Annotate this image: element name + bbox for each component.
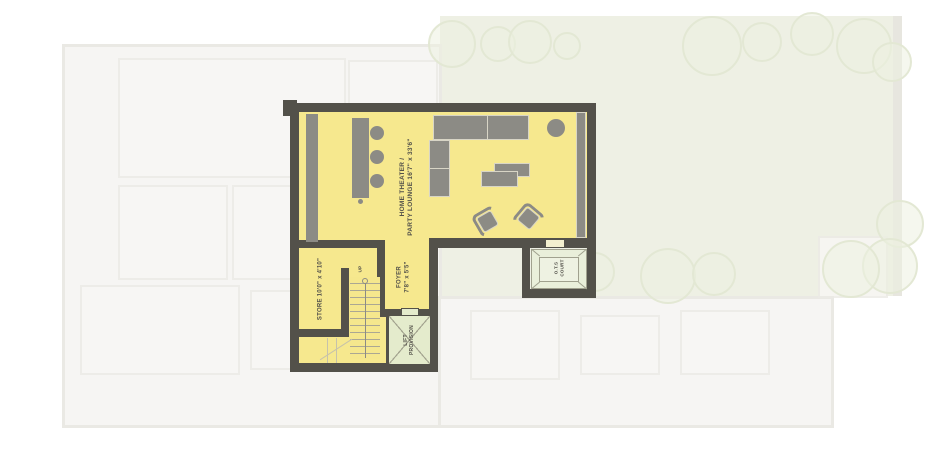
tree-circle [742,22,782,62]
bar-floor-dot [358,199,363,204]
sectional-sofa-top [433,115,529,140]
store-label: STORE 10'0" x 4'10" [317,258,325,320]
lift-entrance-tab [401,308,419,316]
round-table [547,119,565,137]
faded-room [680,310,770,375]
bar-stool [370,126,384,140]
foyer-label: FOYER 7'8" x 5'5" [397,261,412,292]
sofa-cushion-divider [487,116,488,139]
home-theater-label-line2: PARTY LOUNGE 16'7" x 33'6" [407,138,415,236]
up-label: UP [357,266,363,273]
tree-circle [553,32,581,60]
lounge-chair [517,207,541,231]
faded-room [470,310,560,380]
tree-circle [640,248,696,304]
wall-store-right [341,268,349,337]
ots-court-label: O.T.S COURT [554,259,565,276]
stair-rail-post [362,278,368,284]
foyer-label-line2: 7'8" x 5'5" [404,261,412,292]
stair-rail [365,281,366,358]
lounge-chair [476,210,499,233]
wall-top [285,103,596,112]
court-label-line1: O.T.S [554,259,560,276]
court-window-opening [546,240,564,247]
wall-counter [306,114,318,242]
home-theater-label-line1: HOME THEATER / [399,138,407,236]
tree-circle [428,20,476,68]
tree-circle [822,240,880,298]
tree-circle [682,16,742,76]
sectional-sofa-left [429,140,450,197]
floor-plan-canvas: HOME THEATER / PARTY LOUNGE 16'7" x 33'6… [0,0,950,450]
tree-circle [872,42,912,82]
tree-circle [790,12,834,56]
wall-court-bottom [522,289,596,298]
bar-stool [370,150,384,164]
bar-counter [352,118,369,198]
foyer-label-line1: FOYER [397,261,405,292]
bar-stool [370,174,384,188]
faded-room [580,315,660,375]
sofa-cushion-divider [430,168,449,169]
faded-room [118,185,228,280]
winder-step-line [327,338,328,363]
projector-screen [576,112,586,238]
wall-store-bottom [299,329,349,337]
wall-left [290,103,299,372]
tree-circle [508,20,552,64]
court-label-line2: COURT [559,259,565,276]
winder-step-line [336,338,337,363]
faded-room [80,285,240,375]
wall-right [587,112,596,298]
lift-label-line2: PROVISION [409,325,415,355]
wall-main-bottom-right [429,238,596,248]
home-theater-label: HOME THEATER / PARTY LOUNGE 16'7" x 33'6… [399,138,415,236]
wall-store-top [290,240,382,248]
lift-provision-label: LIFT PROVISION [403,325,415,355]
coffee-table-lower [481,171,518,187]
tree-circle [692,252,736,296]
